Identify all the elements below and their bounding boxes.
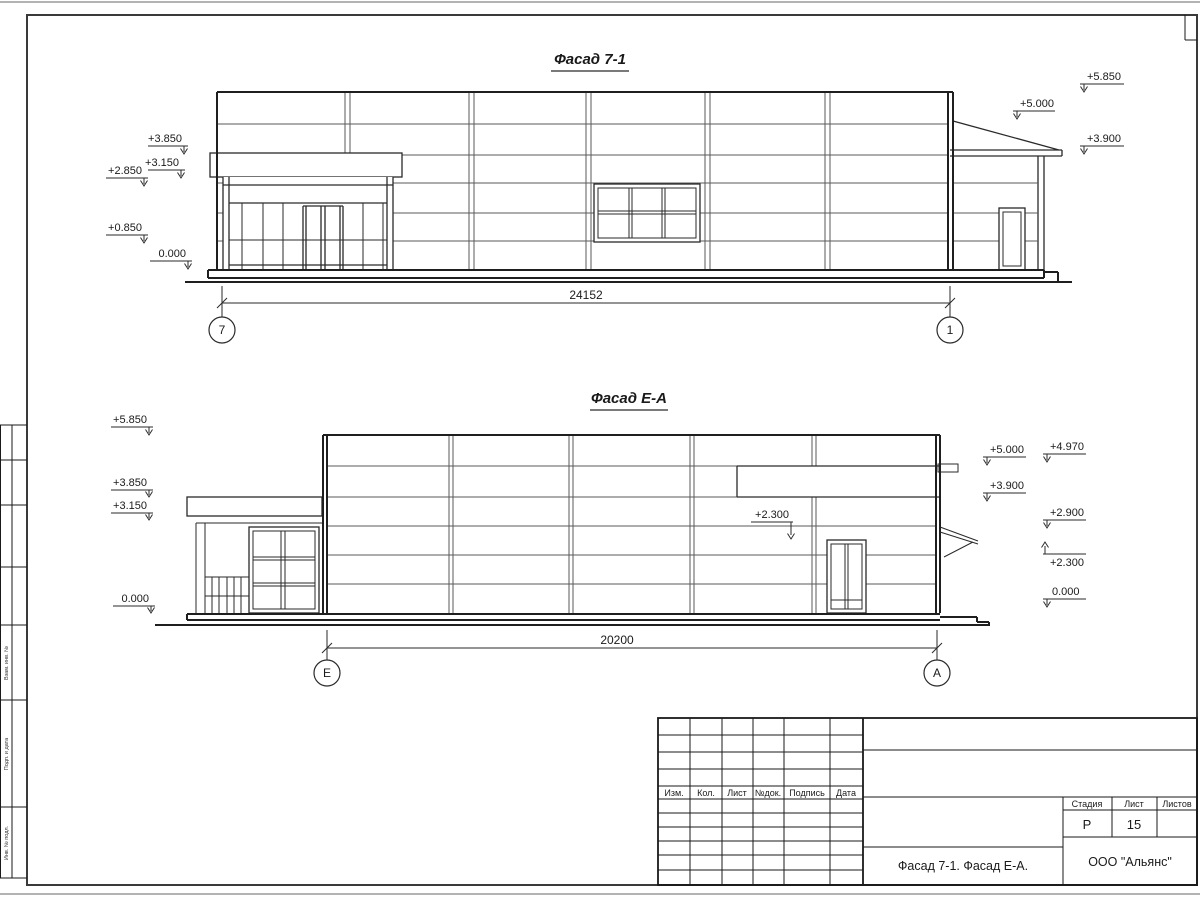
stage-value: Р bbox=[1083, 817, 1092, 832]
sheets-header: Листов bbox=[1162, 799, 1191, 809]
annex-pier bbox=[196, 523, 322, 614]
elevation-mark: +3.150 bbox=[113, 500, 147, 512]
axis-label: 1 bbox=[947, 323, 954, 337]
facade2-dimension: 20200 Е А bbox=[314, 630, 950, 686]
facade2-plinth bbox=[187, 614, 989, 625]
strip-label-inv: Инв. № подл. bbox=[4, 825, 10, 860]
elevation-mark: +2.900 bbox=[1050, 507, 1084, 519]
sheet-header: Лист bbox=[1124, 799, 1144, 809]
frieze-mask bbox=[737, 466, 940, 497]
revision-header-izm: Изм. bbox=[664, 788, 683, 798]
strip-label-vzam: Взам. инв. № bbox=[4, 646, 10, 680]
elevation-arrow-icon bbox=[148, 146, 188, 154]
document-title: Фасад 7-1. Фасад Е-А. bbox=[898, 859, 1028, 873]
stage-header: Стадия bbox=[1072, 799, 1103, 809]
sheet-number: 15 bbox=[1127, 817, 1141, 832]
elevation-arrow-icon bbox=[150, 261, 192, 269]
revision-header-data: Дата bbox=[836, 788, 856, 798]
elevation-mark: +5.000 bbox=[1020, 98, 1054, 110]
elevation-arrow-icon bbox=[111, 427, 153, 435]
facade2-elevation-marks-left: +5.850 +3.850 +3.150 0.000 bbox=[111, 414, 155, 613]
axis-label: Е bbox=[323, 666, 331, 680]
elevation-arrow-up-icon bbox=[1042, 542, 1087, 554]
portal-mask bbox=[223, 177, 393, 270]
elevation-arrow-icon bbox=[983, 493, 1026, 501]
annex-window-frame bbox=[249, 527, 319, 613]
facade2-pilasters bbox=[449, 435, 816, 613]
elevation-mark: 0.000 bbox=[1052, 586, 1080, 598]
strip-label-podp: Подп. и дата bbox=[4, 737, 10, 770]
facade2-door-mask bbox=[827, 540, 866, 613]
facade1-dimension: 24152 7 1 bbox=[209, 286, 963, 343]
annex-canopy-slab bbox=[187, 497, 322, 516]
axis-label: 7 bbox=[219, 323, 226, 337]
elevation-mark: +0.850 bbox=[108, 222, 142, 234]
axis-label: А bbox=[933, 666, 941, 680]
elevation-arrow-icon bbox=[1080, 146, 1124, 154]
canopy-mask bbox=[210, 153, 402, 177]
title-block: Изм. Кол. Лист №док. Подпись Дата Стадия… bbox=[658, 718, 1197, 885]
annex-window-inner bbox=[253, 531, 315, 609]
elevation-arrow-icon bbox=[1043, 454, 1086, 462]
facade-drawing-canvas: Взам. инв. № Подп. и дата Инв. № подл. Ф… bbox=[0, 0, 1200, 900]
revision-table-columns bbox=[690, 718, 830, 885]
elevation-mark: +2.300 bbox=[1050, 557, 1084, 569]
elevation-arrow-icon bbox=[148, 170, 185, 178]
facade2-elevation-marks-right: +5.000 +4.970 +3.900 +2.900 +2.300 0.000 bbox=[983, 441, 1086, 607]
elevation-mark: +2.850 bbox=[108, 165, 142, 177]
elevation-arrow-icon bbox=[1043, 599, 1086, 607]
facade-e-a-title: Фасад Е-А bbox=[591, 390, 667, 407]
elevation-arrow-icon bbox=[106, 235, 148, 243]
elevation-arrow-icon bbox=[113, 606, 155, 613]
dimension-value: 20200 bbox=[600, 633, 634, 647]
company-name: ООО "Альянс" bbox=[1088, 855, 1172, 869]
revision-header-podpis: Подпись bbox=[789, 788, 825, 798]
elevation-mark: 0.000 bbox=[158, 248, 186, 260]
dimension-value: 24152 bbox=[569, 288, 603, 302]
elevation-arrow-icon bbox=[1080, 84, 1124, 92]
revision-header-kol: Кол. bbox=[697, 788, 715, 798]
elevation-mark: +3.850 bbox=[148, 133, 182, 145]
elevation-mark: +4.970 bbox=[1050, 441, 1084, 453]
elevation-mark: +2.300 bbox=[755, 509, 789, 521]
elevation-mark: +3.900 bbox=[990, 480, 1024, 492]
elevation-arrow-icon bbox=[106, 178, 148, 186]
elevation-mark: +3.900 bbox=[1087, 133, 1121, 145]
revision-header-ndok: №док. bbox=[755, 788, 781, 798]
elevation-mark: 0.000 bbox=[121, 593, 149, 605]
elevation-arrow-icon bbox=[751, 522, 795, 539]
elevation-mark: +3.850 bbox=[113, 477, 147, 489]
elevation-mark: +5.850 bbox=[113, 414, 147, 426]
elevation-mark: +5.850 bbox=[1087, 71, 1121, 83]
facade1-window-mask bbox=[594, 184, 700, 242]
facade-7-1-drawing: Фасад 7-1 +3.850 bbox=[106, 51, 1124, 343]
elevation-arrow-icon bbox=[111, 490, 153, 497]
elevation-arrow-icon bbox=[1043, 520, 1086, 528]
facade1-annex bbox=[950, 121, 1062, 270]
facade-e-a-drawing: Фасад Е-А +5.850 bbox=[111, 390, 1086, 686]
frame-corner-box bbox=[1185, 15, 1197, 40]
elevation-arrow-icon bbox=[1013, 111, 1055, 119]
left-filing-strip: Взам. инв. № Подп. и дата Инв. № подл. bbox=[0, 425, 27, 878]
elevation-mark: +3.150 bbox=[145, 157, 179, 169]
annex-grille bbox=[205, 577, 249, 613]
facade1-elevation-marks-left: +3.850 +3.150 +2.850 +0.850 0.000 bbox=[106, 133, 192, 269]
facade2-annex bbox=[187, 497, 322, 614]
facade1-pilasters bbox=[345, 92, 830, 270]
elevation-arrow-icon bbox=[111, 513, 153, 520]
revision-table-rows bbox=[658, 735, 863, 870]
facade1-plinth bbox=[208, 270, 1058, 282]
revision-header-list: Лист bbox=[727, 788, 747, 798]
annex-window-mullions bbox=[253, 531, 315, 609]
elevation-mark: +5.000 bbox=[990, 444, 1024, 456]
drawing-sheet: Взам. инв. № Подп. и дата Инв. № подл. Ф… bbox=[0, 0, 1200, 900]
facade-7-1-title: Фасад 7-1 bbox=[554, 51, 626, 68]
elevation-arrow-icon bbox=[983, 457, 1026, 465]
facade2-elevation-mark-middle: +2.300 bbox=[751, 509, 795, 539]
side-canopy-bracket bbox=[940, 527, 978, 557]
